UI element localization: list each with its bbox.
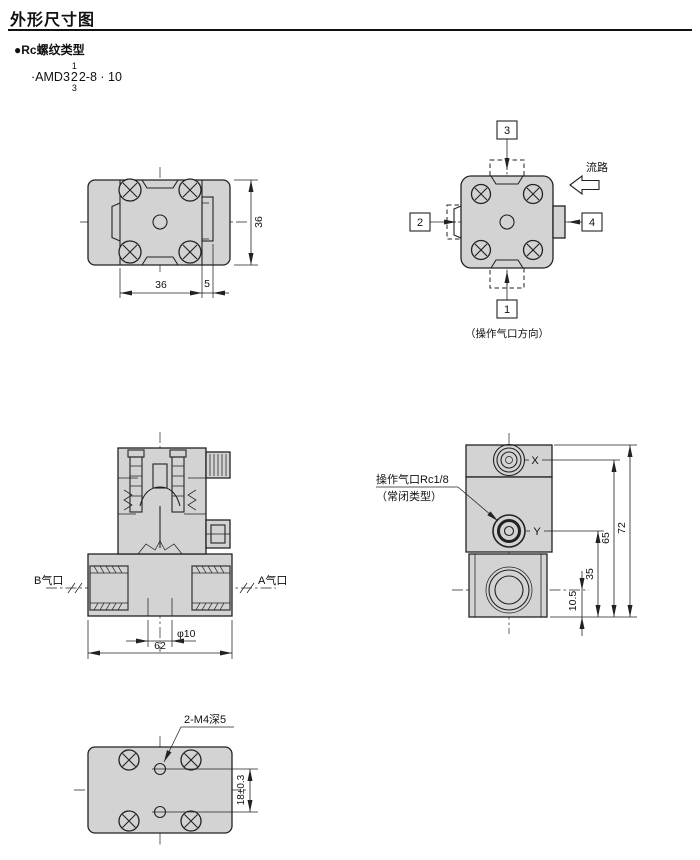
port-2-label: 2 — [417, 217, 423, 229]
flow-arrow-icon — [570, 176, 599, 194]
screw-icon — [472, 241, 491, 260]
thread-callout-label: 2-M4深5 — [184, 713, 226, 726]
adjust-knob — [206, 452, 230, 478]
port-4-label: 4 — [589, 217, 595, 229]
port-a-label: A气口 — [258, 573, 287, 587]
screw-icon — [472, 185, 491, 204]
dim-x-height: 65 — [600, 532, 612, 544]
screw-icon — [524, 185, 543, 204]
port-y-label: Y — [533, 526, 541, 538]
side-view-drawing: X Y 操作气口Rc1/8 （常闭类型） 10.5 35 65 72 — [376, 433, 637, 636]
top-view-drawing: 36 36 5 — [80, 167, 265, 298]
dim-bottom-port-height: 10.5 — [567, 591, 579, 612]
port-3-label: 3 — [504, 125, 510, 137]
side-fitting — [206, 520, 230, 548]
dim-tab: 5 — [204, 278, 210, 290]
dim-total-height: 72 — [616, 522, 628, 534]
screw-icon — [119, 179, 141, 201]
screw-icon — [181, 750, 201, 770]
bottom-block — [469, 554, 547, 617]
screw-icon — [119, 241, 141, 263]
dim-y-height: 35 — [584, 568, 596, 580]
flow-label: 流路 — [586, 160, 608, 174]
port-x-label: X — [531, 455, 539, 467]
dim-hole-pitch: 18±0.3 — [236, 774, 247, 805]
pilot-port-label-line1: 操作气口Rc1/8 — [376, 472, 449, 486]
screw-icon — [119, 750, 139, 770]
screw-icon — [179, 241, 201, 263]
dim-width: 62 — [154, 640, 166, 652]
dimension-drawing: 36 36 5 3 — [0, 0, 700, 860]
pilot-port-label-line2: （常闭类型） — [376, 489, 442, 503]
dim-height: 36 — [253, 216, 265, 228]
screw-icon — [524, 241, 543, 260]
port-direction-caption: （操作气口方向） — [465, 327, 549, 340]
screw-icon — [119, 811, 139, 831]
screw-icon — [181, 811, 201, 831]
cross-section-view: B气口 A气口 φ10 62 — [34, 432, 287, 659]
screw-icon — [179, 179, 201, 201]
bottom-view-drawing: 2-M4深5 18±0.3 — [74, 713, 258, 846]
port-1-label: 1 — [504, 304, 510, 316]
valve-body-outline — [88, 747, 232, 833]
side-tab — [553, 206, 565, 238]
port-direction-view: 3 2 4 1 流路 （操作气口方向） — [410, 121, 608, 340]
dim-bore: φ10 — [177, 628, 196, 640]
port-b-label: B气口 — [34, 573, 63, 587]
dim-width: 36 — [155, 279, 167, 291]
lower-body — [88, 554, 232, 616]
valve-body-outline — [88, 180, 230, 265]
